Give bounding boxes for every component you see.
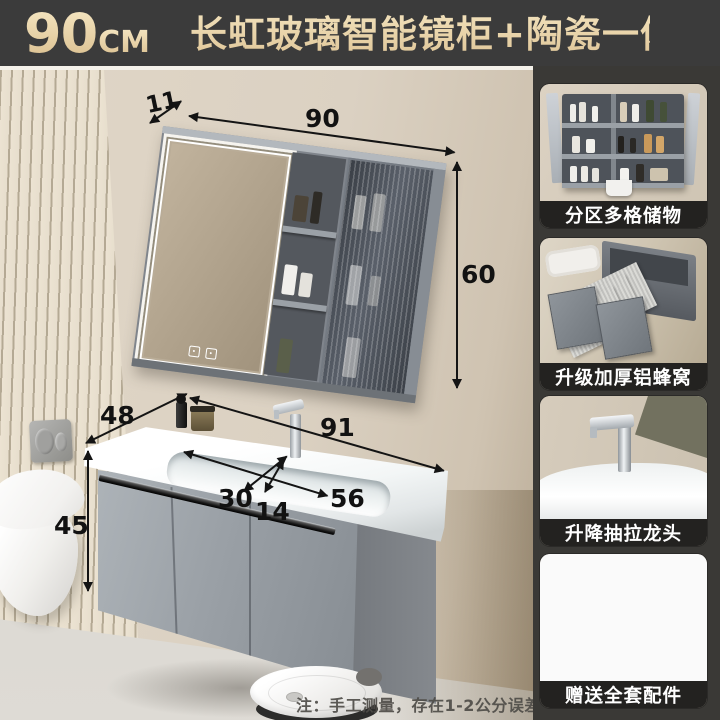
bottle — [630, 138, 636, 153]
card-background — [540, 554, 707, 681]
feature-card-honeycomb-photo — [540, 238, 707, 363]
dimension-arrow-mirror-height — [456, 162, 458, 388]
faucet-nozzle — [590, 427, 597, 438]
bottle — [620, 102, 627, 122]
door-seam — [249, 498, 251, 675]
bottle — [342, 337, 361, 378]
faucet-nozzle — [274, 410, 279, 419]
perfume-bottle — [176, 402, 187, 428]
defogger-icon — [188, 345, 200, 357]
vacuum-lidar — [356, 668, 382, 686]
mirror-touch-controls — [188, 345, 217, 360]
dimension-label-counter-depth: 48 — [100, 403, 135, 428]
faucet-body — [290, 414, 301, 458]
mirror-cabinet — [131, 126, 446, 403]
bottle — [276, 338, 293, 373]
shelf-divider — [611, 94, 616, 188]
feature-caption-faucet: 升降抽拉龙头 — [540, 519, 707, 546]
size-unit: CM — [98, 25, 150, 60]
bottle — [581, 166, 588, 182]
dimension-label-cabinet-height: 45 — [54, 513, 89, 538]
feature-card-accessories-photo — [540, 554, 707, 681]
open-storage-cabinet — [562, 94, 684, 188]
power-icon — [205, 348, 217, 360]
feature-caption-storage: 分区多格储物 — [540, 201, 707, 228]
feature-card-faucet-photo — [540, 396, 707, 519]
bottle — [572, 136, 580, 153]
shelf-board — [282, 225, 336, 238]
towel — [606, 180, 632, 196]
bottle — [570, 166, 577, 182]
dimension-label-mirror-height: 60 — [461, 262, 496, 287]
bottle — [345, 265, 362, 306]
measurement-note: 注：手工测量，存在1-2公分误差 — [296, 692, 531, 716]
product-detail-image: 90 CM 长虹玻璃智能镜柜+陶瓷一体盆 — [0, 0, 720, 720]
bottle — [618, 136, 624, 153]
dimension-label-basin-length: 56 — [330, 486, 365, 511]
bottle — [646, 100, 654, 122]
header-bar: 90 CM 长虹玻璃智能镜柜+陶瓷一体盆 — [0, 0, 720, 66]
shelf-board — [562, 123, 684, 128]
feature-sidebar: 分区多格储物 升级加厚铝蜂窝 — [533, 0, 720, 720]
feature-card-accessories: 赠送全套配件 — [540, 554, 707, 708]
flush-plate — [29, 419, 73, 463]
size-value: 90 — [24, 2, 97, 65]
bathroom-scene: 11 90 60 48 91 45 56 30 14 注：手工测量，存在1-2公… — [0, 66, 533, 720]
door-panel — [596, 296, 653, 359]
feature-caption-honeycomb: 升级加厚铝蜂窝 — [540, 363, 707, 390]
bottle — [632, 104, 639, 122]
bottle — [644, 134, 652, 153]
product-title: 长虹玻璃智能镜柜+陶瓷一体盆 — [190, 0, 650, 66]
bottle — [592, 106, 598, 122]
bottle — [281, 264, 298, 295]
bottle — [660, 102, 667, 122]
bottle — [351, 195, 366, 230]
faucet-body — [618, 426, 631, 472]
dimension-label-mirror-width: 90 — [305, 106, 340, 131]
bottle — [367, 275, 381, 306]
bottle — [369, 193, 386, 232]
dimension-label-basin-width: 30 — [218, 486, 253, 511]
shelf-board — [562, 154, 684, 159]
decor-canister — [191, 410, 214, 431]
feature-card-faucet: 升降抽拉龙头 — [540, 396, 707, 546]
flush-button-large — [34, 428, 54, 455]
dimension-label-counter-width: 91 — [320, 415, 355, 440]
bottle — [310, 191, 323, 224]
tissue-box — [650, 168, 668, 181]
shelf-board — [273, 299, 327, 312]
wall-hung-toilet — [0, 468, 88, 620]
dimension-label-mirror-depth: 11 — [144, 89, 180, 118]
feature-card-honeycomb: 升级加厚铝蜂窝 — [540, 238, 707, 390]
bottle — [592, 168, 599, 182]
bottle — [579, 102, 586, 122]
feature-card-storage-photo — [540, 84, 707, 201]
door-seam — [171, 487, 178, 634]
bottle — [636, 164, 644, 182]
feature-caption-accessories: 赠送全套配件 — [540, 681, 707, 708]
flush-button-small — [55, 432, 68, 452]
bottle — [292, 195, 309, 223]
door-panel — [548, 286, 605, 349]
bottle — [656, 136, 664, 153]
size-badge: 90 CM — [24, 2, 150, 65]
feature-card-storage: 分区多格储物 — [540, 84, 707, 228]
bottle — [586, 139, 595, 153]
bottle — [570, 104, 576, 122]
bottle — [298, 272, 313, 297]
dimension-label-basin-depth: 14 — [255, 499, 290, 524]
